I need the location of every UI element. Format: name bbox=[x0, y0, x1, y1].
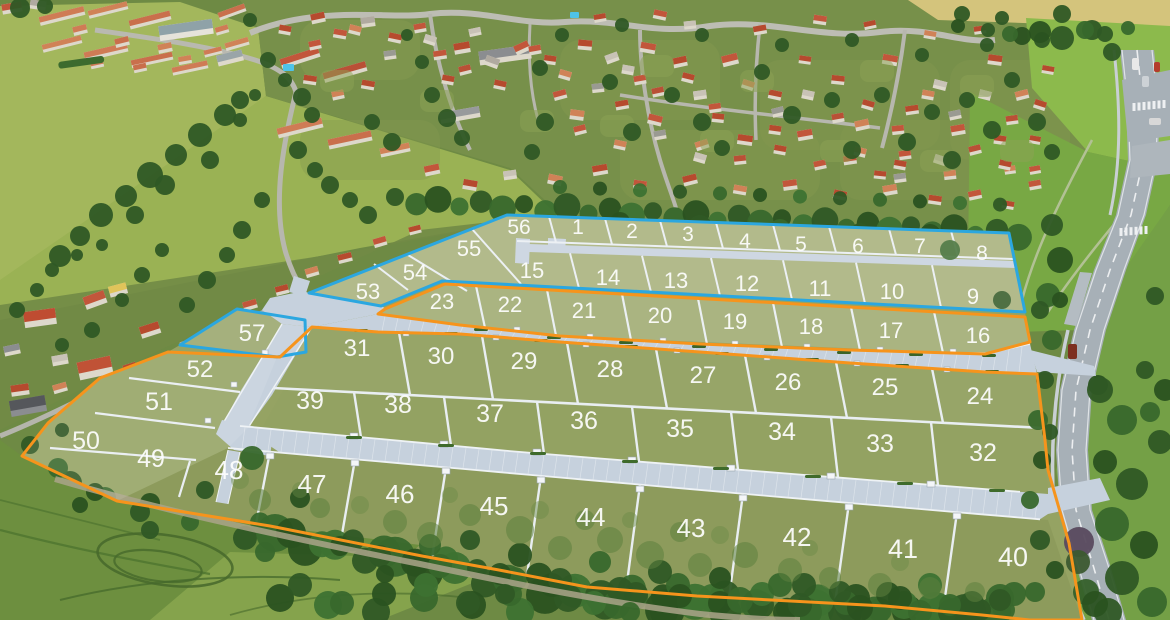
svg-text:1: 1 bbox=[572, 216, 584, 239]
svg-text:55: 55 bbox=[457, 236, 481, 261]
svg-text:48: 48 bbox=[215, 455, 244, 485]
svg-text:25: 25 bbox=[872, 374, 899, 401]
svg-text:21: 21 bbox=[572, 298, 596, 323]
svg-text:42: 42 bbox=[783, 522, 812, 552]
svg-text:52: 52 bbox=[187, 356, 214, 383]
svg-text:54: 54 bbox=[403, 260, 427, 285]
svg-text:38: 38 bbox=[384, 391, 412, 419]
svg-text:57: 57 bbox=[239, 320, 266, 347]
svg-text:5: 5 bbox=[795, 233, 807, 256]
svg-text:31: 31 bbox=[344, 335, 371, 362]
svg-text:49: 49 bbox=[137, 445, 165, 473]
svg-text:43: 43 bbox=[677, 513, 706, 543]
svg-text:29: 29 bbox=[511, 348, 538, 375]
svg-text:16: 16 bbox=[966, 323, 990, 348]
svg-text:30: 30 bbox=[428, 343, 455, 370]
svg-text:7: 7 bbox=[914, 235, 926, 258]
svg-text:41: 41 bbox=[888, 534, 918, 564]
svg-text:56: 56 bbox=[507, 216, 530, 239]
svg-text:20: 20 bbox=[648, 303, 672, 328]
svg-text:17: 17 bbox=[879, 318, 903, 343]
svg-text:4: 4 bbox=[739, 230, 751, 253]
svg-text:14: 14 bbox=[596, 265, 620, 290]
svg-text:24: 24 bbox=[967, 383, 994, 410]
svg-text:9: 9 bbox=[967, 284, 979, 309]
svg-text:37: 37 bbox=[476, 400, 504, 428]
svg-text:26: 26 bbox=[775, 369, 802, 396]
svg-text:34: 34 bbox=[768, 418, 796, 446]
svg-text:36: 36 bbox=[570, 407, 598, 435]
svg-text:10: 10 bbox=[880, 279, 904, 304]
svg-text:2: 2 bbox=[626, 220, 638, 243]
svg-text:45: 45 bbox=[480, 491, 509, 521]
svg-text:53: 53 bbox=[356, 279, 380, 304]
svg-text:35: 35 bbox=[666, 415, 694, 443]
svg-text:27: 27 bbox=[690, 362, 717, 389]
svg-text:39: 39 bbox=[296, 387, 324, 415]
svg-text:12: 12 bbox=[735, 271, 759, 296]
svg-text:19: 19 bbox=[723, 309, 747, 334]
svg-text:22: 22 bbox=[498, 292, 522, 317]
svg-text:32: 32 bbox=[969, 439, 997, 467]
svg-text:28: 28 bbox=[597, 356, 624, 383]
svg-text:23: 23 bbox=[430, 289, 454, 314]
svg-text:33: 33 bbox=[866, 430, 894, 458]
svg-text:15: 15 bbox=[520, 258, 544, 283]
svg-text:11: 11 bbox=[809, 276, 832, 301]
svg-text:3: 3 bbox=[682, 223, 694, 246]
svg-text:6: 6 bbox=[852, 235, 864, 258]
svg-text:46: 46 bbox=[386, 479, 415, 509]
svg-text:44: 44 bbox=[577, 502, 606, 532]
svg-text:8: 8 bbox=[976, 242, 988, 265]
svg-text:13: 13 bbox=[664, 268, 688, 293]
svg-text:50: 50 bbox=[72, 427, 100, 455]
svg-text:40: 40 bbox=[998, 542, 1028, 572]
svg-text:18: 18 bbox=[799, 314, 823, 339]
svg-text:51: 51 bbox=[145, 388, 173, 416]
svg-text:47: 47 bbox=[298, 469, 327, 499]
